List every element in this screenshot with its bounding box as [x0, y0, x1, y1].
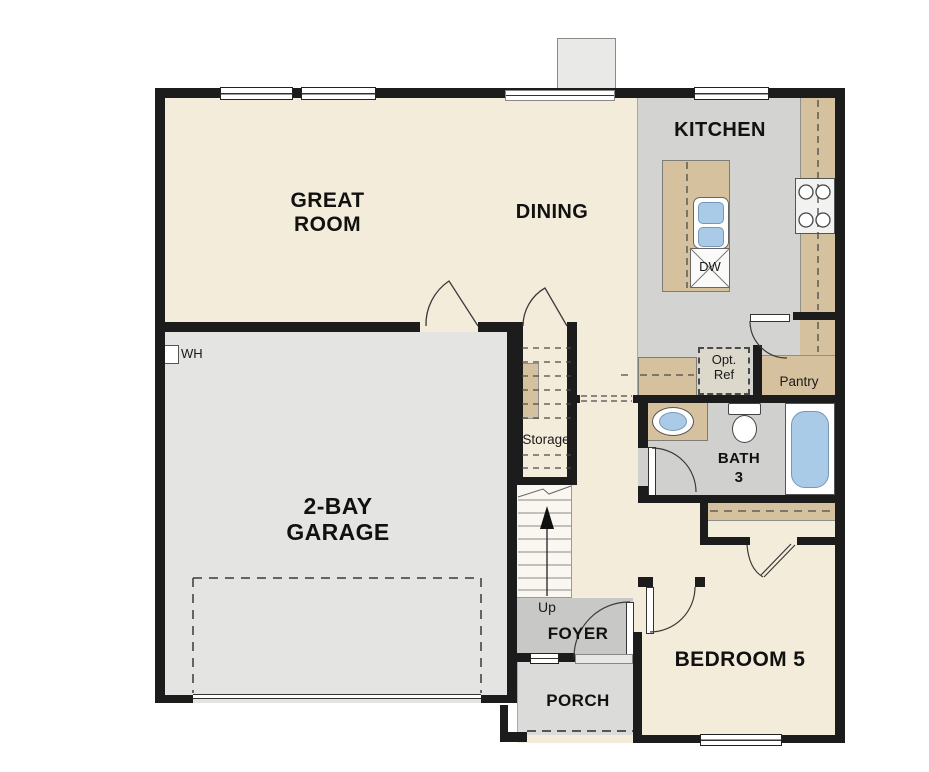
- storage-dashes: [522, 348, 571, 468]
- label-storage: Storage: [514, 432, 578, 448]
- label-bedroom5: BEDROOM 5: [638, 648, 842, 672]
- label-great-room: GREAT ROOM: [255, 189, 400, 236]
- floor-plan: GREAT ROOM DINING KITCHEN 2-BAY GARAGE B…: [0, 0, 929, 772]
- label-pantry: Pantry: [767, 374, 831, 390]
- bath-door-swing: [652, 448, 696, 492]
- label-dw: DW: [690, 260, 730, 275]
- label-porch: PORCH: [526, 691, 630, 710]
- label-dining: DINING: [490, 201, 614, 223]
- label-kitchen: KITCHEN: [648, 119, 792, 141]
- label-opt-ref: Opt. Ref: [701, 353, 747, 383]
- closet-door-leaf: [761, 544, 795, 577]
- closet-door-swing: [747, 545, 763, 577]
- label-bath3: BATH 3: [715, 450, 763, 488]
- stair-break-line: [518, 486, 571, 497]
- storage-door-swing: [523, 288, 567, 326]
- range-burners: [799, 185, 830, 227]
- garage-door-zone-dash: [193, 578, 481, 693]
- stair-treads: [518, 500, 571, 590]
- bedroom-door-swing: [650, 587, 695, 632]
- label-foyer: FOYER: [526, 624, 630, 643]
- label-up: Up: [532, 599, 562, 615]
- label-garage: 2-BAY GARAGE: [256, 494, 420, 546]
- opening-dash: [581, 396, 632, 401]
- stairs-up-arrow: [540, 506, 554, 529]
- garage-entry-door-swing: [426, 281, 478, 326]
- pantry-door-swing: [750, 321, 787, 358]
- label-wh: WH: [181, 347, 211, 362]
